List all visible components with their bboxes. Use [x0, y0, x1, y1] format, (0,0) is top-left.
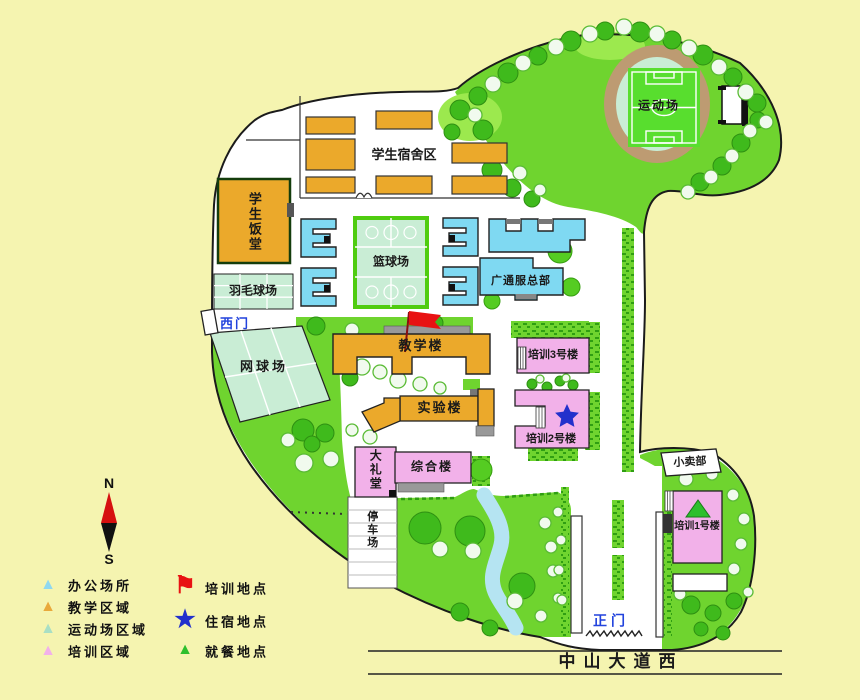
green-strip-training3-top: [511, 321, 589, 338]
badminton-court: [214, 274, 293, 309]
auditorium-building: [355, 447, 396, 497]
road-median-hedge: [612, 500, 624, 548]
hedge-east-long: [622, 228, 634, 472]
basketball-court: [355, 218, 427, 307]
shop-building: [661, 449, 721, 476]
campus-map-svg: [0, 0, 860, 700]
sports-field-track: [604, 45, 710, 163]
parking-lot: [348, 497, 397, 588]
campus-map: 学生宿舍区 学生饭堂 羽毛球场 西门 网球场 篮球场 教学楼 广通服总部 培训3…: [0, 0, 860, 700]
hedge-training2-bottom: [528, 448, 578, 461]
gtf-door: [516, 294, 536, 299]
training3-building: [517, 338, 589, 373]
gate-wall-left: [571, 516, 582, 633]
canteen-door: [287, 203, 294, 217]
canteen-building: [218, 179, 294, 263]
gate-wall-right: [656, 512, 663, 637]
annex-building: [673, 574, 727, 591]
road-median-hedge: [612, 555, 624, 600]
